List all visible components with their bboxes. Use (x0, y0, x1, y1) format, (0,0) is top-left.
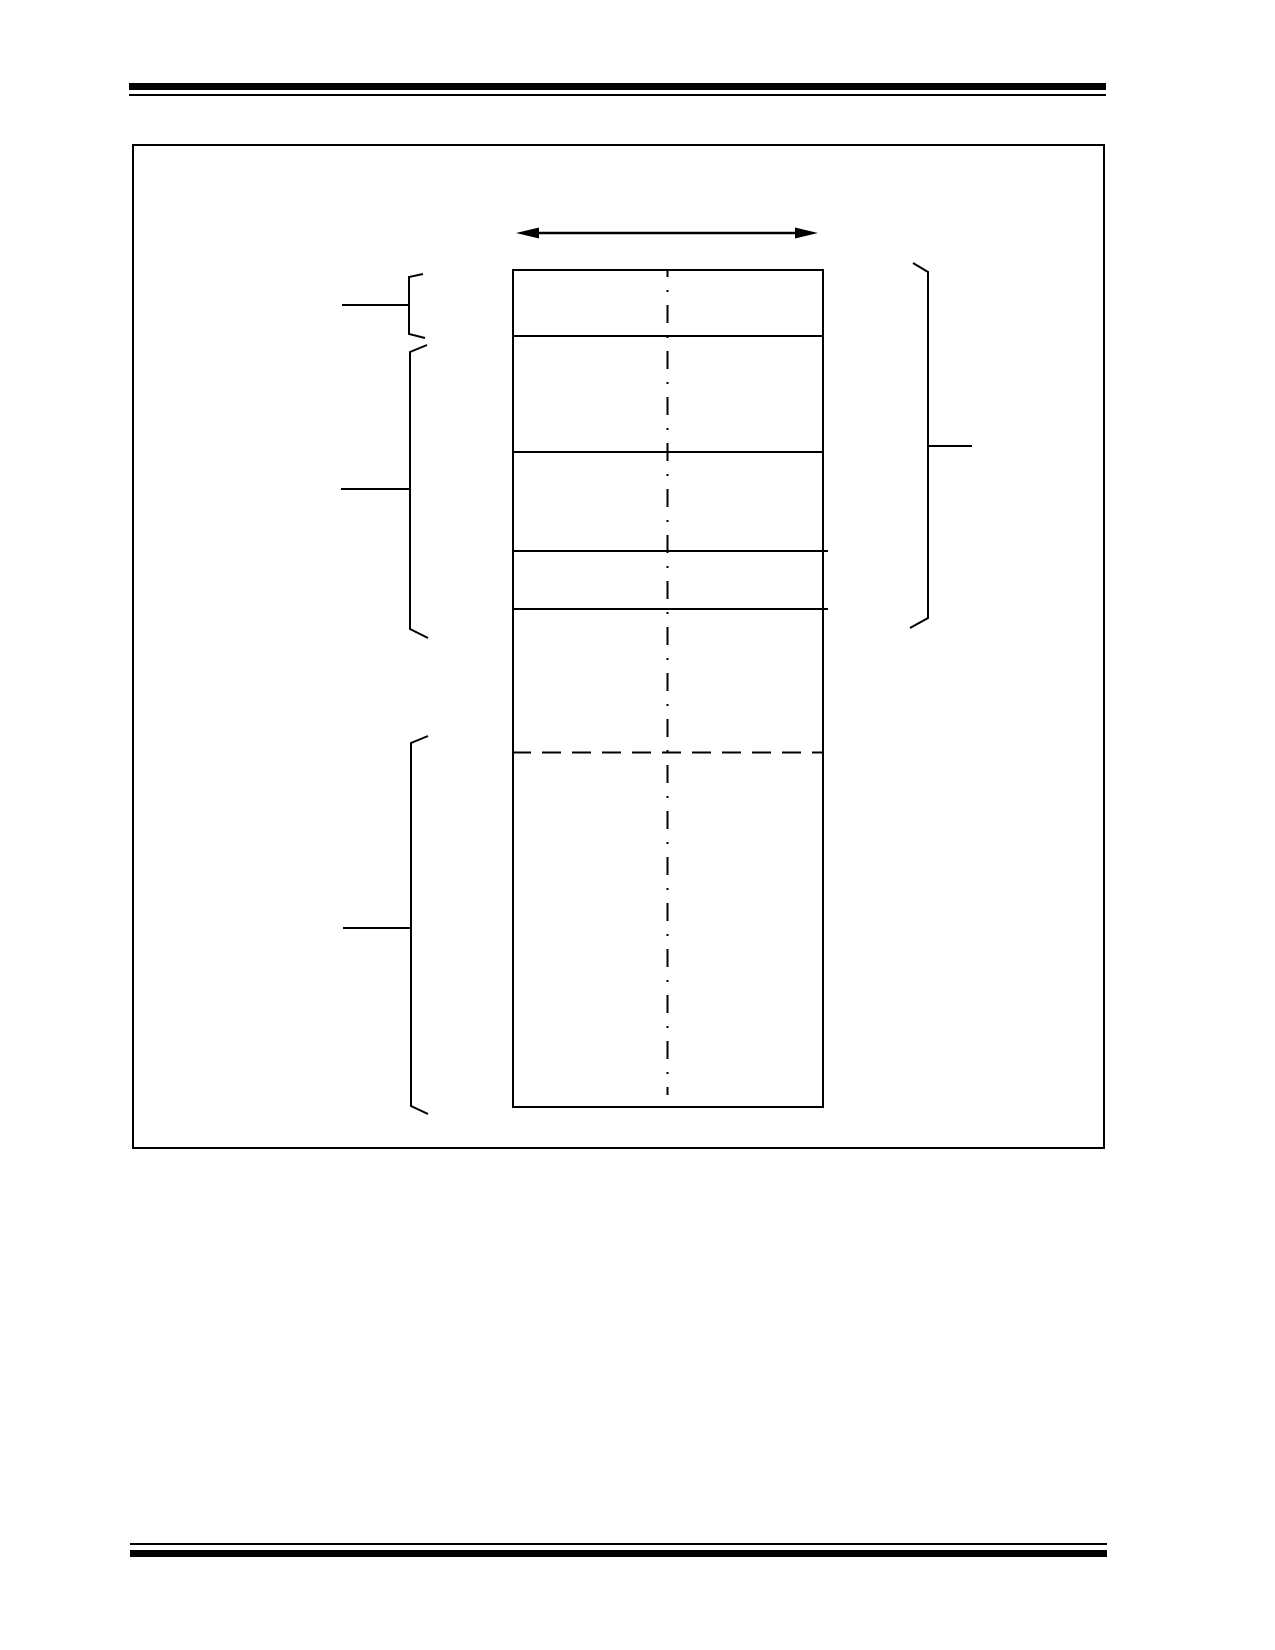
center-dash-line (666, 269, 669, 1095)
row-divider-3 (512, 550, 828, 552)
right-bracket-leader-line (928, 445, 972, 447)
footer-rule-thin (130, 1543, 1107, 1545)
left-bracket-1-leader-line (342, 304, 410, 306)
left-bracket-1 (408, 273, 427, 339)
left-bracket-2 (409, 344, 429, 639)
document-page (0, 0, 1275, 1650)
left-bracket-3 (410, 735, 429, 1115)
row-divider-4 (512, 608, 828, 610)
header-rule-thin (129, 94, 1106, 96)
left-bracket-3-leader-line (343, 927, 411, 929)
footer-rule-thick (130, 1550, 1107, 1557)
left-bracket-2-leader-line (341, 488, 410, 490)
header-rule-thick (129, 83, 1106, 90)
right-bracket (909, 262, 929, 629)
double-arrow-icon (505, 222, 830, 244)
